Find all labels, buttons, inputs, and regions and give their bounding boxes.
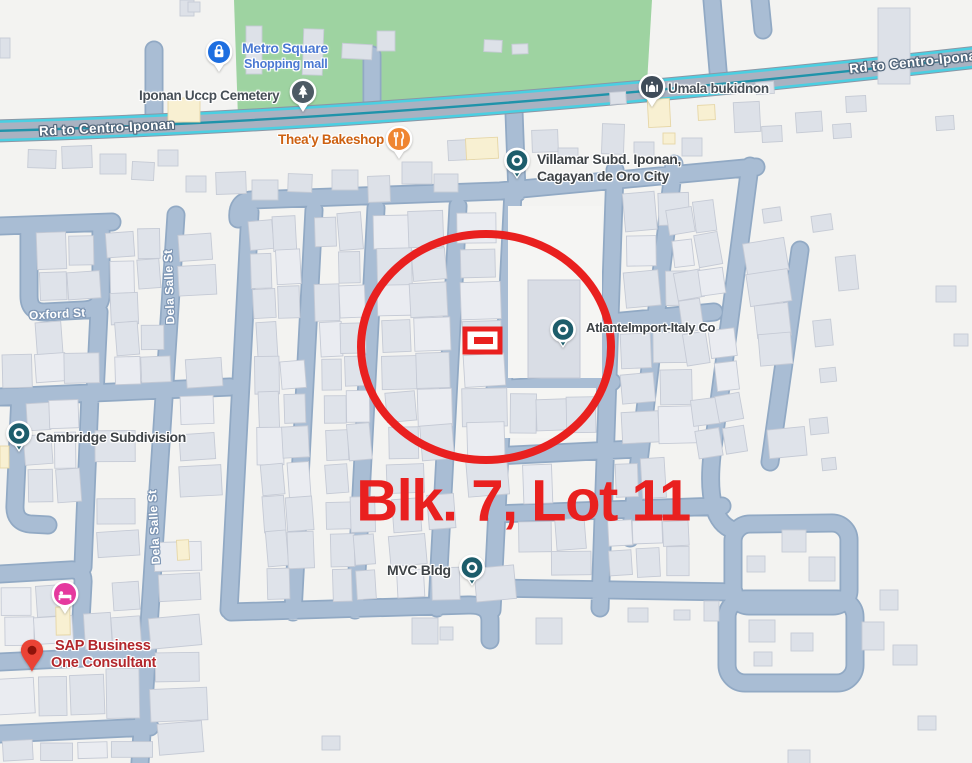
building <box>36 232 67 270</box>
annotation-block-lot-label: Blk. 7, Lot 11 <box>356 469 690 536</box>
building <box>623 270 661 308</box>
building <box>440 627 453 640</box>
building <box>112 581 140 611</box>
building <box>39 272 67 301</box>
building <box>326 430 349 461</box>
building <box>746 269 792 307</box>
building <box>34 353 66 383</box>
poi-label-mvc[interactable]: MVC Bldg <box>387 562 451 578</box>
building <box>137 259 161 290</box>
place-of-worship-icon[interactable] <box>637 73 667 109</box>
building <box>178 233 213 261</box>
building <box>484 40 503 53</box>
building <box>663 133 675 144</box>
building <box>346 423 372 461</box>
building <box>342 43 373 60</box>
building <box>626 236 656 267</box>
poi-label-sap-line2[interactable]: One Consultant <box>51 655 156 672</box>
building <box>70 674 105 715</box>
building <box>252 289 276 319</box>
poi-label-metro-square[interactable]: Metro Square <box>242 40 328 56</box>
building <box>258 391 280 429</box>
building <box>110 261 135 294</box>
building <box>176 540 189 561</box>
building <box>216 171 247 194</box>
building <box>936 115 955 130</box>
building <box>97 530 140 558</box>
poi-label-cambridge[interactable]: Cambridge Subdivision <box>36 429 186 445</box>
building <box>267 568 290 599</box>
building <box>319 321 343 357</box>
building <box>257 427 284 465</box>
building <box>132 161 155 180</box>
building <box>791 633 813 651</box>
building <box>610 91 627 104</box>
building <box>188 2 200 12</box>
building <box>0 677 35 714</box>
building <box>250 253 272 288</box>
building <box>155 652 199 682</box>
building <box>338 252 360 284</box>
building <box>733 101 761 132</box>
building <box>28 150 57 169</box>
building <box>936 286 956 302</box>
building <box>698 105 716 121</box>
poi-label-cemetery[interactable]: Iponan Uccp Cemetery <box>139 88 279 104</box>
building <box>252 180 278 200</box>
place-dot-icon[interactable] <box>457 554 487 588</box>
building <box>758 332 793 366</box>
building <box>722 425 747 454</box>
building <box>56 468 82 503</box>
building <box>636 548 660 578</box>
red-map-pin-icon[interactable] <box>18 638 46 674</box>
building <box>278 286 300 319</box>
building <box>324 396 346 424</box>
building <box>462 388 508 427</box>
building <box>414 317 451 351</box>
building <box>62 145 93 168</box>
building <box>138 228 161 258</box>
shopping-bag-icon[interactable] <box>204 38 234 74</box>
building <box>260 463 285 495</box>
building <box>620 372 655 404</box>
building <box>660 369 692 405</box>
building <box>256 322 278 359</box>
place-dot-icon[interactable] <box>502 147 532 181</box>
building <box>325 464 349 494</box>
building <box>2 354 32 388</box>
building <box>285 496 314 532</box>
building <box>862 622 884 650</box>
building <box>157 721 204 756</box>
cemetery-icon[interactable] <box>288 78 318 114</box>
building <box>465 137 498 160</box>
building <box>67 271 101 300</box>
building <box>382 320 411 353</box>
building <box>809 557 835 581</box>
building <box>330 534 354 567</box>
building <box>262 495 286 533</box>
building <box>698 267 726 296</box>
building <box>287 461 311 497</box>
building <box>692 200 716 233</box>
building <box>833 123 852 138</box>
building <box>811 214 833 233</box>
building <box>714 361 739 392</box>
building <box>536 399 567 431</box>
lot-marker-bar <box>474 337 493 344</box>
building <box>666 207 696 236</box>
building <box>339 285 366 318</box>
building <box>373 215 410 249</box>
building <box>110 292 139 325</box>
building <box>704 601 719 621</box>
building <box>1 588 31 616</box>
building <box>179 465 223 497</box>
building <box>158 573 201 602</box>
building <box>49 399 79 428</box>
building <box>332 170 358 190</box>
building <box>368 176 391 203</box>
building <box>918 716 936 730</box>
building <box>314 217 336 247</box>
building <box>353 534 375 565</box>
place-dot-icon[interactable] <box>4 420 34 454</box>
building <box>97 499 135 524</box>
building <box>158 150 178 166</box>
building <box>954 334 968 346</box>
building <box>412 618 438 644</box>
building <box>248 220 274 251</box>
building <box>275 249 301 285</box>
building <box>337 212 364 251</box>
building <box>601 124 624 155</box>
building <box>846 95 867 112</box>
map-canvas[interactable]: Metro Square Shopping mall Iponan Uccp C… <box>0 0 972 763</box>
poi-label-sap-line1[interactable]: SAP Business <box>55 638 151 655</box>
building <box>111 742 152 758</box>
poi-label-umala[interactable]: Umala bukidnon <box>668 81 769 97</box>
building <box>821 457 836 470</box>
place-dot-icon[interactable] <box>548 316 578 350</box>
building <box>532 130 559 153</box>
building <box>510 394 536 434</box>
building <box>682 138 702 156</box>
building <box>754 652 772 666</box>
building <box>141 325 164 349</box>
building <box>35 321 63 355</box>
restaurant-icon[interactable] <box>384 125 414 161</box>
building <box>254 356 279 394</box>
building <box>749 620 775 642</box>
bed-icon[interactable] <box>50 580 80 616</box>
poi-sublabel-metro-square[interactable]: Shopping mall <box>244 57 328 71</box>
building <box>672 239 695 267</box>
building <box>265 530 288 567</box>
building <box>782 530 806 552</box>
building <box>762 125 783 142</box>
poi-label-villamar-line1[interactable]: Villamar Subd. Iponan, <box>537 151 681 167</box>
building <box>620 333 651 369</box>
building <box>105 231 134 258</box>
building <box>186 176 206 192</box>
road-label-dela-salle-upper: Dela Salle St <box>162 249 178 324</box>
building <box>813 319 834 347</box>
building <box>622 191 657 232</box>
building <box>460 249 495 278</box>
poi-label-villamar-line2[interactable]: Cagayan de Oro City <box>537 168 669 184</box>
building <box>28 469 53 502</box>
building <box>346 390 369 422</box>
building <box>682 331 710 366</box>
poi-label-atlante[interactable]: AtlanteImport-Italy Co <box>586 321 715 336</box>
building <box>322 736 340 750</box>
building <box>536 618 562 644</box>
building <box>0 38 10 58</box>
building <box>69 236 94 266</box>
building <box>141 356 171 383</box>
building <box>880 590 898 610</box>
building <box>178 264 217 296</box>
building <box>377 31 395 51</box>
building <box>893 645 917 665</box>
building <box>402 162 432 184</box>
building <box>185 357 223 388</box>
building <box>674 610 690 620</box>
road-label-oxford: Oxford St <box>29 307 86 324</box>
building <box>78 742 108 759</box>
building <box>322 359 342 390</box>
building <box>272 216 297 252</box>
building <box>715 392 744 423</box>
building <box>467 422 505 461</box>
building <box>747 556 765 572</box>
building <box>284 394 306 423</box>
building <box>288 174 313 193</box>
building <box>788 750 810 763</box>
building <box>609 550 633 576</box>
building <box>106 668 140 718</box>
building <box>795 111 822 133</box>
building <box>287 531 315 569</box>
building <box>115 321 140 356</box>
building <box>551 551 591 575</box>
building <box>628 608 648 622</box>
building <box>332 569 352 602</box>
building <box>762 207 782 223</box>
building <box>512 44 528 55</box>
building <box>460 281 501 320</box>
building <box>41 743 73 761</box>
building <box>2 740 33 762</box>
building <box>767 427 807 459</box>
building <box>835 255 858 291</box>
building <box>280 360 307 389</box>
building <box>100 154 126 174</box>
building <box>180 395 214 424</box>
building <box>148 614 202 649</box>
building <box>434 174 458 192</box>
building <box>463 353 506 388</box>
building <box>409 282 448 318</box>
building <box>115 356 141 384</box>
building <box>282 426 310 458</box>
building <box>150 687 208 722</box>
building <box>356 570 377 600</box>
building <box>667 547 689 576</box>
building <box>695 428 723 459</box>
building <box>38 676 67 715</box>
building <box>314 284 340 321</box>
building <box>381 356 417 390</box>
building <box>809 417 829 435</box>
building <box>819 367 836 383</box>
building <box>64 353 100 384</box>
building <box>417 388 452 426</box>
building <box>416 352 450 388</box>
building <box>621 411 659 444</box>
poi-label-bakeshop[interactable]: Thea'y Bakeshop <box>278 132 384 148</box>
building <box>326 502 352 529</box>
